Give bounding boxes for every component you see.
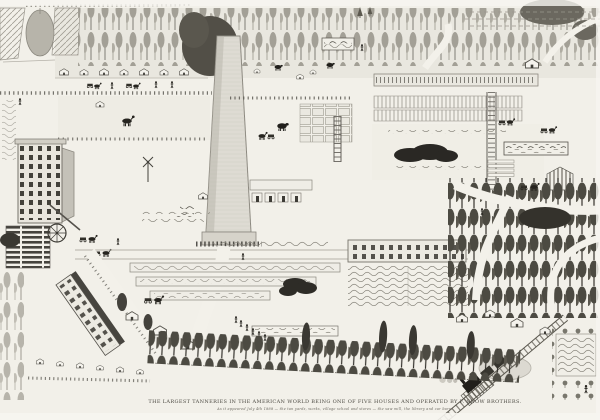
tree-cloud	[519, 207, 571, 229]
water-wheel	[48, 224, 66, 242]
long-building	[250, 180, 312, 190]
tan-vats-grid	[300, 104, 352, 142]
caption-subtitle: As it appeared July 4th 1888 — the tan y…	[216, 407, 452, 411]
map-drawing: THE LARGEST TANNERIES IN THE AMERICAN WO…	[0, 0, 600, 420]
bark-beds	[374, 96, 522, 108]
right-forest-roads	[448, 178, 600, 318]
caption-title: THE LARGEST TANNERIES IN THE AMERICAN WO…	[148, 399, 521, 405]
factory-side	[62, 148, 74, 222]
round-tree	[26, 10, 54, 56]
bark-pile	[6, 226, 50, 268]
folk-art-map: THE LARGEST TANNERIES IN THE AMERICAN WO…	[0, 0, 600, 420]
factory-cornice	[15, 139, 66, 144]
shade-trees-banner	[504, 142, 568, 155]
